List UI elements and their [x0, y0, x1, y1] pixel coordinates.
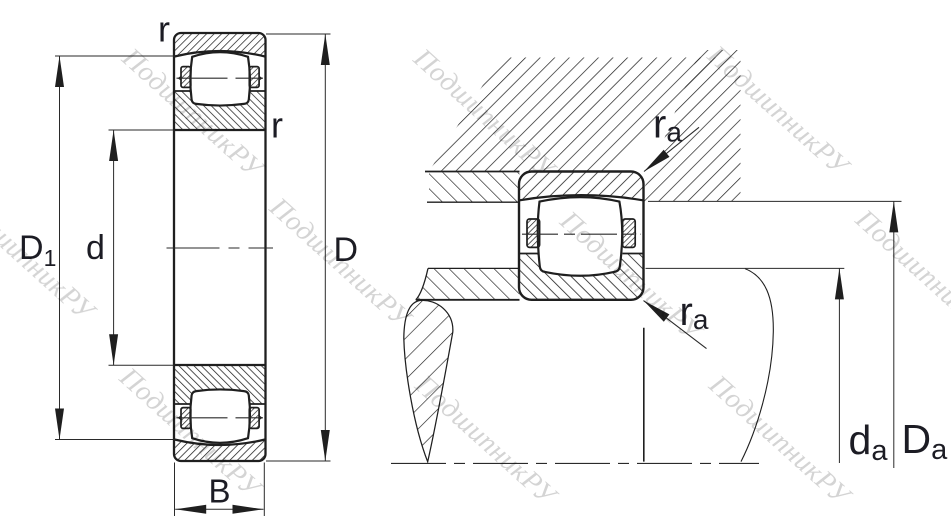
svg-text:r: r — [158, 9, 170, 50]
svg-text:r: r — [271, 105, 283, 146]
svg-text:d: d — [86, 229, 105, 267]
